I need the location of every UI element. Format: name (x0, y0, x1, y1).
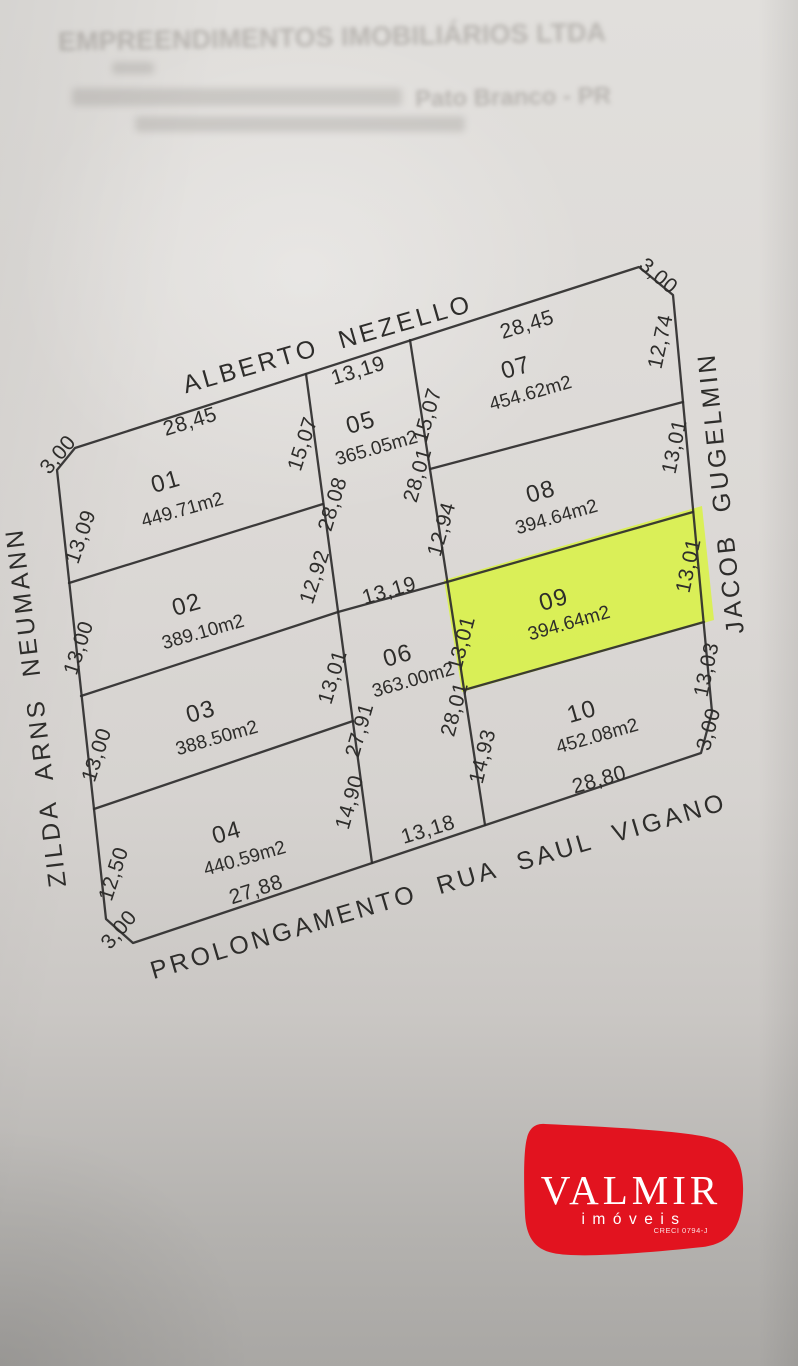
lot-09-highlight (444, 506, 714, 692)
lot-03-number: 03 (183, 695, 219, 729)
dim-lot02-left: 13,00 (59, 618, 98, 677)
dim-corner-bl: 3,00 (96, 906, 141, 954)
dim-lot02-right: 12,92 (295, 547, 334, 606)
lot-05-area: 365.05m2 (333, 427, 420, 470)
dim-lot07-right: 12,74 (644, 312, 678, 371)
lot-06-number: 06 (380, 639, 416, 673)
dim-lot01-left: 13,09 (61, 507, 101, 567)
lot-03-label: 03 388.50m2 (164, 685, 260, 760)
dim-corner-br: 3,00 (692, 706, 725, 753)
paper-photo: EMPREENDIMENTOS IMOBILIÁRIOS LTDA Pato B… (0, 0, 798, 1366)
logo-creci: CRECI 0794-J (654, 1226, 708, 1235)
dim-corner-tr: 3,00 (634, 253, 682, 298)
lot-06-label: 06 363.00m2 (361, 629, 457, 702)
valmir-logo: VALMIR imóveis CRECI 0794-J (524, 1124, 743, 1255)
lot-07-label: 07 454.62m2 (478, 341, 574, 415)
dim-lot06-left: 27,91 (341, 701, 378, 760)
street-name-left: ZILDA ARNS NEUMANN (0, 525, 72, 889)
dim-lot07-front: 28,45 (497, 306, 556, 344)
lot-line-07-08 (430, 402, 683, 469)
lot-01-label: 01 449.71m2 (129, 455, 226, 532)
lot-08-label: 08 394.64m2 (504, 465, 600, 539)
lot-01-area: 449.71m2 (139, 489, 226, 532)
lot-02-number: 02 (169, 588, 205, 622)
lot-10-number: 10 (564, 695, 600, 729)
lot-04-label: 04 440.59m2 (192, 805, 288, 880)
lot-02-area: 389.10m2 (160, 611, 247, 654)
lot-10-label: 10 452.08m2 (545, 685, 641, 758)
dim-lot03-left: 13,00 (77, 725, 116, 784)
lot-08-area: 394.64m2 (513, 496, 600, 539)
dim-lot04-bottom: 27,88 (226, 870, 285, 909)
lot-07-number: 07 (498, 351, 534, 385)
dim-corner-tl: 3,00 (35, 431, 80, 479)
lot-03-area: 388.50m2 (173, 717, 260, 760)
lot-02-label: 02 389.10m2 (150, 578, 246, 654)
lot-01-number: 01 (148, 465, 184, 499)
dim-lot01-front: 28,45 (160, 403, 219, 441)
lot-08-number: 08 (523, 475, 559, 509)
dim-lot08-left: 12,94 (423, 500, 460, 559)
lot-05-label: 05 365.05m2 (324, 396, 420, 470)
dim-lot06-top: 13,19 (360, 572, 419, 609)
street-name-top: ALBERTO NEZELLO (180, 289, 476, 399)
dim-lot10-right: 13,03 (690, 640, 724, 699)
lot-04-number: 04 (209, 816, 245, 850)
plat-drawing: ALBERTO NEZELLO ZILDA ARNS NEUMANN JACOB… (0, 0, 798, 1366)
dim-lot10-bottom: 28,80 (570, 761, 629, 798)
lot-07-area: 454.62m2 (487, 372, 574, 415)
logo-name-text: VALMIR (541, 1167, 721, 1213)
lot-05-number: 05 (343, 406, 379, 440)
